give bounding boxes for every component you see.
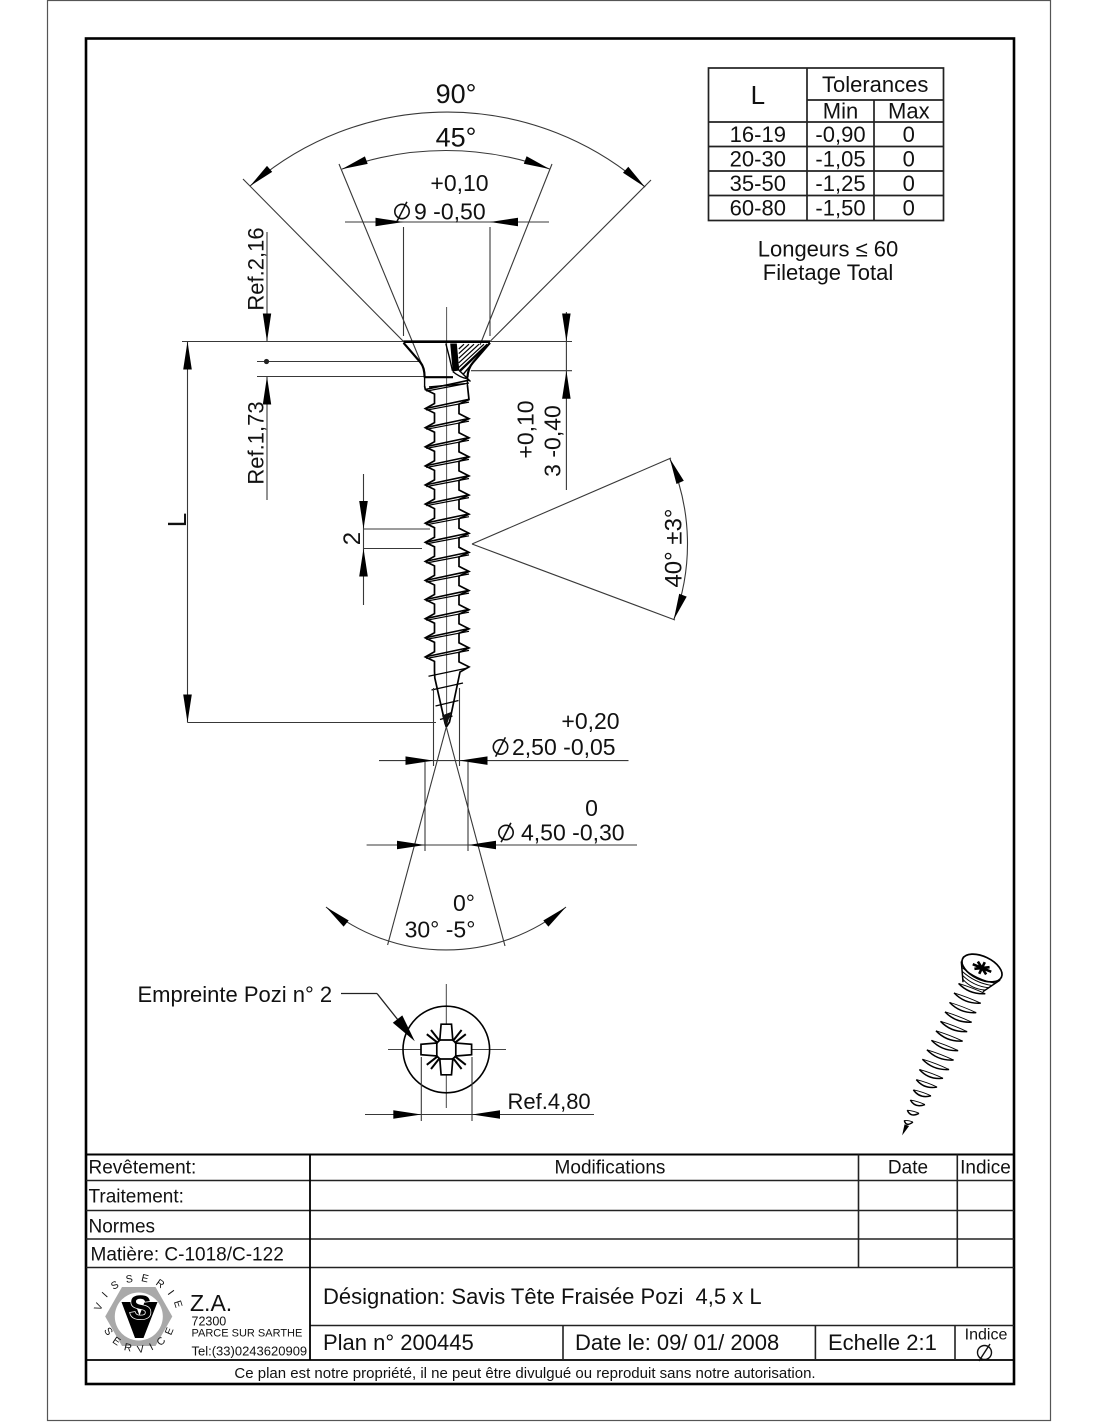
svg-text:0: 0 [903, 196, 915, 221]
svg-text:Tel:(33)0243620909: Tel:(33)0243620909 [192, 1344, 308, 1359]
svg-text:-1,50: -1,50 [815, 196, 865, 221]
svg-text:Date: Date [888, 1158, 928, 1179]
svg-text:Min: Min [823, 99, 858, 124]
svg-text:Tolerances: Tolerances [822, 72, 928, 97]
svg-text:60-80: 60-80 [730, 196, 786, 221]
svg-text:3 -0,40: 3 -0,40 [540, 405, 566, 477]
svg-text:Revêtement:: Revêtement: [89, 1158, 197, 1179]
svg-text:Echelle 2:1: Echelle 2:1 [828, 1330, 937, 1355]
svg-text:Empreinte Pozi n° 2: Empreinte Pozi n° 2 [138, 982, 333, 1007]
svg-text:Indice: Indice [960, 1158, 1011, 1179]
svg-text:+0,10: +0,10 [513, 400, 539, 458]
svg-text:-1,05: -1,05 [815, 146, 865, 171]
svg-text:0: 0 [903, 122, 915, 147]
svg-text:Normes: Normes [89, 1217, 156, 1238]
svg-text:35-50: 35-50 [730, 171, 786, 196]
svg-text:Matière: C-1018/C-122: Matière: C-1018/C-122 [91, 1245, 284, 1266]
svg-text:2: 2 [339, 532, 366, 545]
svg-text:Traitement:: Traitement: [89, 1187, 184, 1208]
svg-text:Indice: Indice [965, 1327, 1008, 1344]
svg-text:Modifications: Modifications [555, 1158, 666, 1179]
svg-text:30° -5°: 30° -5° [405, 917, 476, 943]
svg-text:45°: 45° [436, 122, 477, 152]
svg-text:+0,10: +0,10 [430, 170, 488, 196]
svg-text:L: L [162, 513, 192, 527]
svg-text:72300: 72300 [192, 1315, 227, 1329]
svg-text:-0,90: -0,90 [815, 122, 865, 147]
svg-text:Désignation: Savis Tête Fraisé: Désignation: Savis Tête Fraisée Pozi 4,5… [323, 1284, 762, 1309]
svg-text:Ref.4,80: Ref.4,80 [508, 1089, 591, 1114]
svg-text:Plan n° 200445: Plan n° 200445 [323, 1330, 474, 1355]
svg-text:Ref.1,73: Ref.1,73 [244, 401, 269, 484]
svg-text:Filetage Total: Filetage Total [763, 260, 893, 285]
svg-text:Longeurs ≤ 60: Longeurs ≤ 60 [758, 237, 899, 262]
svg-text:9 -0,50: 9 -0,50 [414, 199, 486, 225]
svg-text:PARCE SUR SARTHE: PARCE SUR SARTHE [192, 1328, 303, 1340]
svg-text:40° ±3°: 40° ±3° [660, 508, 687, 587]
svg-text:0°: 0° [453, 890, 475, 916]
svg-text:S: S [129, 1289, 152, 1327]
svg-text:0: 0 [903, 146, 915, 171]
svg-text:Max: Max [888, 99, 930, 124]
svg-text:20-30: 20-30 [730, 146, 786, 171]
svg-text:Ref.2,16: Ref.2,16 [244, 227, 269, 310]
svg-text:+0,20: +0,20 [561, 708, 619, 734]
svg-text:Z.A.: Z.A. [190, 1290, 232, 1316]
svg-text:-1,25: -1,25 [815, 171, 865, 196]
svg-text:L: L [751, 80, 765, 110]
svg-text:Ce plan est notre propriété, i: Ce plan est notre propriété, il ne peut … [234, 1365, 815, 1382]
svg-text:4,50 -0,30: 4,50 -0,30 [521, 820, 625, 846]
svg-text:Date le: 09/ 01/ 2008: Date le: 09/ 01/ 2008 [575, 1330, 779, 1355]
svg-text:0: 0 [903, 171, 915, 196]
svg-text:0: 0 [585, 795, 598, 821]
svg-text:16-19: 16-19 [730, 122, 786, 147]
svg-text:90°: 90° [436, 79, 477, 109]
svg-text:2,50 -0,05: 2,50 -0,05 [512, 734, 616, 760]
